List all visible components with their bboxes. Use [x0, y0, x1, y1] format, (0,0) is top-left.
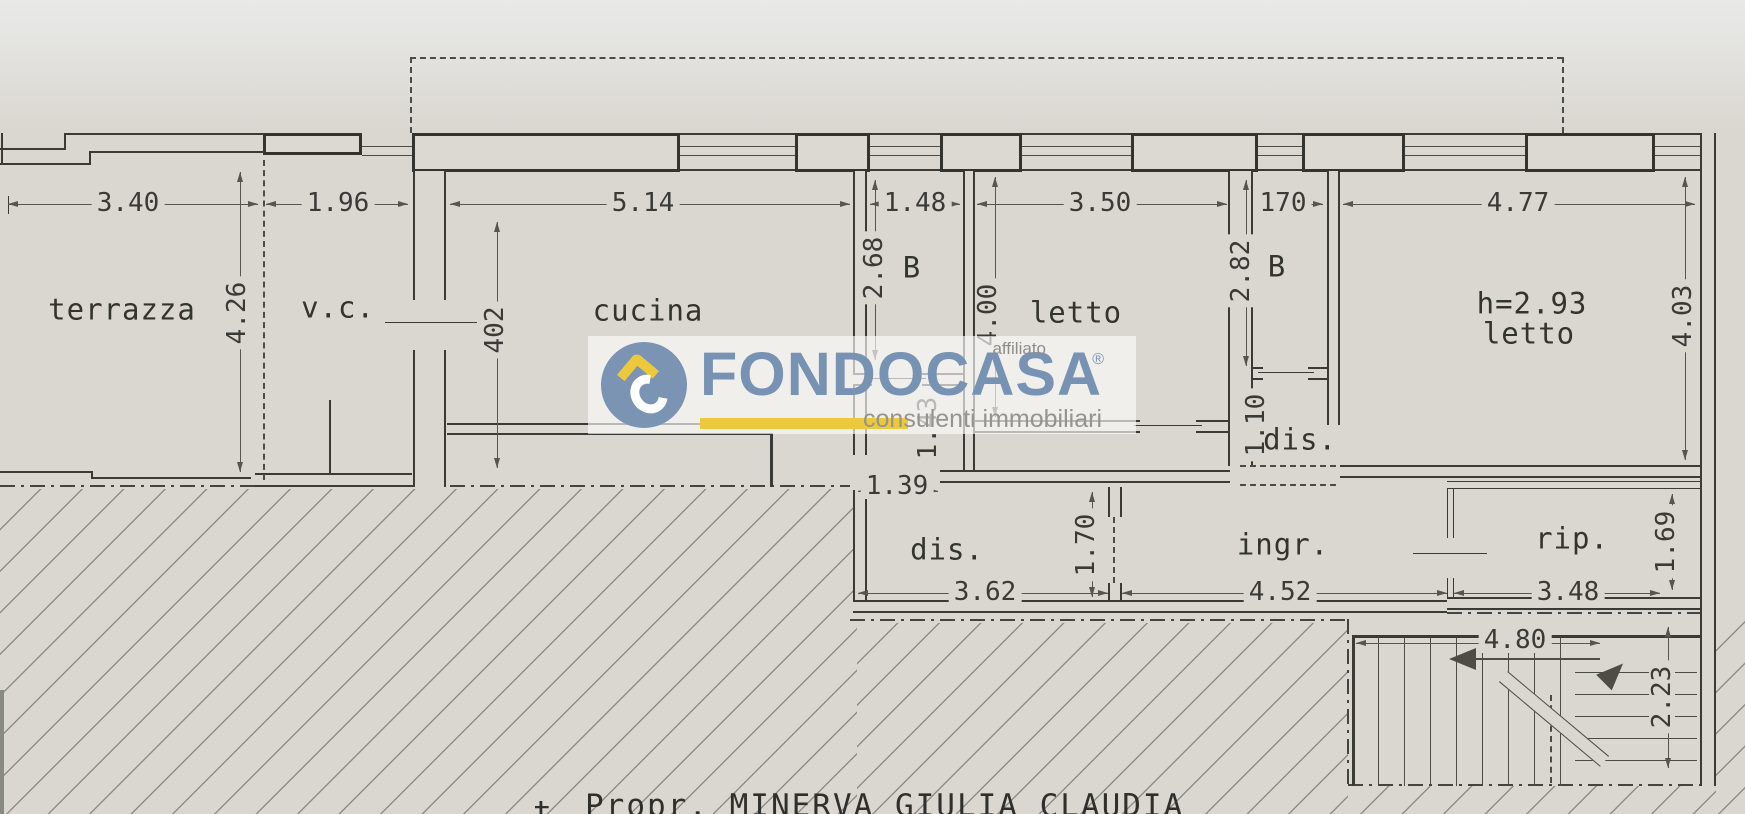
room-label-dis1: dis.	[910, 536, 984, 565]
door-line	[1413, 553, 1487, 554]
wall-segment	[1327, 171, 1340, 425]
room-label-dis2: dis.	[1263, 426, 1337, 455]
stair-tread	[1430, 637, 1431, 786]
dim-label: 1.48	[879, 190, 952, 216]
brand-tagline: consulenti immobiliari	[863, 407, 1102, 432]
stair-tread	[1575, 694, 1697, 695]
stair-tread	[1404, 637, 1405, 786]
stair-arrow-tail	[1475, 658, 1600, 660]
terrace-edge	[0, 471, 92, 473]
dim-label: 4.52	[1244, 579, 1317, 605]
wall-segment	[770, 433, 773, 487]
stair-tread	[1575, 738, 1697, 739]
stair-tread	[1575, 716, 1697, 717]
dim-label: 402	[482, 302, 508, 359]
watermark-panel: FONDOCASA affiliato ® consulenti immobil…	[588, 336, 1136, 434]
stair-direction-arrow	[1596, 656, 1631, 691]
wall-pier	[1525, 133, 1655, 172]
terrace-edge	[89, 151, 91, 165]
room-label-bath1: B	[903, 254, 921, 283]
stair-tread	[1575, 672, 1697, 673]
wall-segment	[1253, 367, 1263, 380]
wall-segment	[1700, 133, 1716, 786]
stairs-outline	[1352, 635, 1355, 786]
stair-break-line	[1499, 671, 1609, 767]
dim-label: 2.68	[861, 232, 887, 305]
room-label-height: h=2.93	[1477, 290, 1588, 319]
door-line	[1258, 372, 1314, 373]
caption-fragment: t	[533, 798, 554, 814]
affiliate-label: affiliato	[992, 340, 1046, 357]
dim-label: 4.03	[1670, 280, 1696, 353]
wall-segment	[1447, 489, 1454, 538]
terrace-edge	[1, 133, 3, 165]
room-label-letto1: letto	[1030, 299, 1122, 328]
wall-pier	[412, 133, 680, 172]
room-label-terrazza: terrazza	[48, 296, 196, 325]
wall-segment	[853, 600, 1447, 613]
wall-segment	[413, 171, 446, 300]
dashed-divider	[263, 160, 265, 480]
dim-label: 2.23	[1649, 661, 1675, 734]
dashed-outline	[1562, 57, 1564, 133]
room-label-rip: rip.	[1535, 525, 1609, 554]
door-line	[385, 322, 477, 323]
hatch-region	[1348, 786, 1716, 814]
terrace-edge	[64, 133, 264, 135]
wall-segment	[329, 400, 331, 475]
wall-segment	[1340, 465, 1700, 478]
dash-dot-line	[850, 619, 1348, 621]
wall-pier	[795, 133, 870, 172]
hatch-region	[857, 623, 1348, 814]
paper-light-band	[0, 0, 1745, 130]
terrace-edge	[0, 163, 91, 165]
room-label-bath2: B	[1268, 253, 1286, 282]
dashed-outline	[410, 57, 1563, 59]
dashed-opening	[1240, 484, 1336, 486]
stair-tread	[1378, 637, 1379, 786]
dim-label: 1.39	[861, 473, 934, 499]
wall-segment	[413, 350, 446, 487]
terrace-edge	[64, 133, 66, 150]
dashed-opening	[1240, 465, 1336, 467]
dim-label: 1.69	[1653, 506, 1679, 579]
dim-label: 4.26	[224, 277, 250, 350]
room-label-ingr: ingr.	[1237, 531, 1329, 560]
photo-edge	[0, 690, 4, 814]
wall-segment	[940, 470, 1230, 483]
registered-mark: ®	[1092, 352, 1104, 368]
room-label-vc: v.c.	[301, 294, 375, 323]
wall-segment	[1108, 487, 1122, 517]
room-label-cucina: cucina	[593, 297, 704, 326]
wall-segment	[1447, 481, 1716, 489]
dim-label: 170	[1255, 190, 1312, 216]
wall-pier	[263, 133, 362, 155]
terrace-edge	[89, 151, 264, 153]
dim-label: 3.48	[1532, 579, 1605, 605]
dash-dot-line	[1347, 619, 1349, 786]
hatch-region	[0, 489, 857, 814]
dim-label: 5.14	[607, 190, 680, 216]
dim-label: 1.96	[302, 190, 375, 216]
floor-plan: 3.40 1.96 5.14 1.48 3.50 170 4.77 4.26 4…	[0, 0, 1745, 814]
wall-pier	[1302, 133, 1405, 172]
wall-pier	[940, 133, 1022, 172]
dash-dot-line	[1447, 612, 1716, 614]
dim-label: 4.80	[1479, 627, 1552, 653]
stair-direction-arrow	[1449, 648, 1476, 670]
wall-segment	[1196, 420, 1230, 433]
dashed-opening	[1113, 517, 1115, 583]
dim-label: 3.50	[1064, 190, 1137, 216]
fondocasa-logo-icon	[601, 342, 687, 428]
dim-label: 2.82	[1228, 235, 1254, 308]
wall-segment	[255, 473, 412, 487]
owner-caption: Propr. MINERVA GIULIA CLAUDIA	[585, 791, 1184, 814]
wall-pier	[1131, 133, 1258, 172]
wall-segment	[1108, 583, 1122, 600]
terrace-edge	[91, 477, 251, 479]
dim-label: 4.77	[1482, 190, 1555, 216]
hatch-region	[1716, 610, 1745, 814]
dim-label: 3.62	[949, 579, 1022, 605]
dashed-outline	[410, 57, 412, 133]
room-label-letto2: letto	[1483, 320, 1575, 349]
dim-label: 3.40	[92, 190, 165, 216]
terrace-edge	[0, 148, 66, 150]
dim-label: 1.70	[1073, 509, 1099, 582]
door-line	[1134, 425, 1202, 426]
